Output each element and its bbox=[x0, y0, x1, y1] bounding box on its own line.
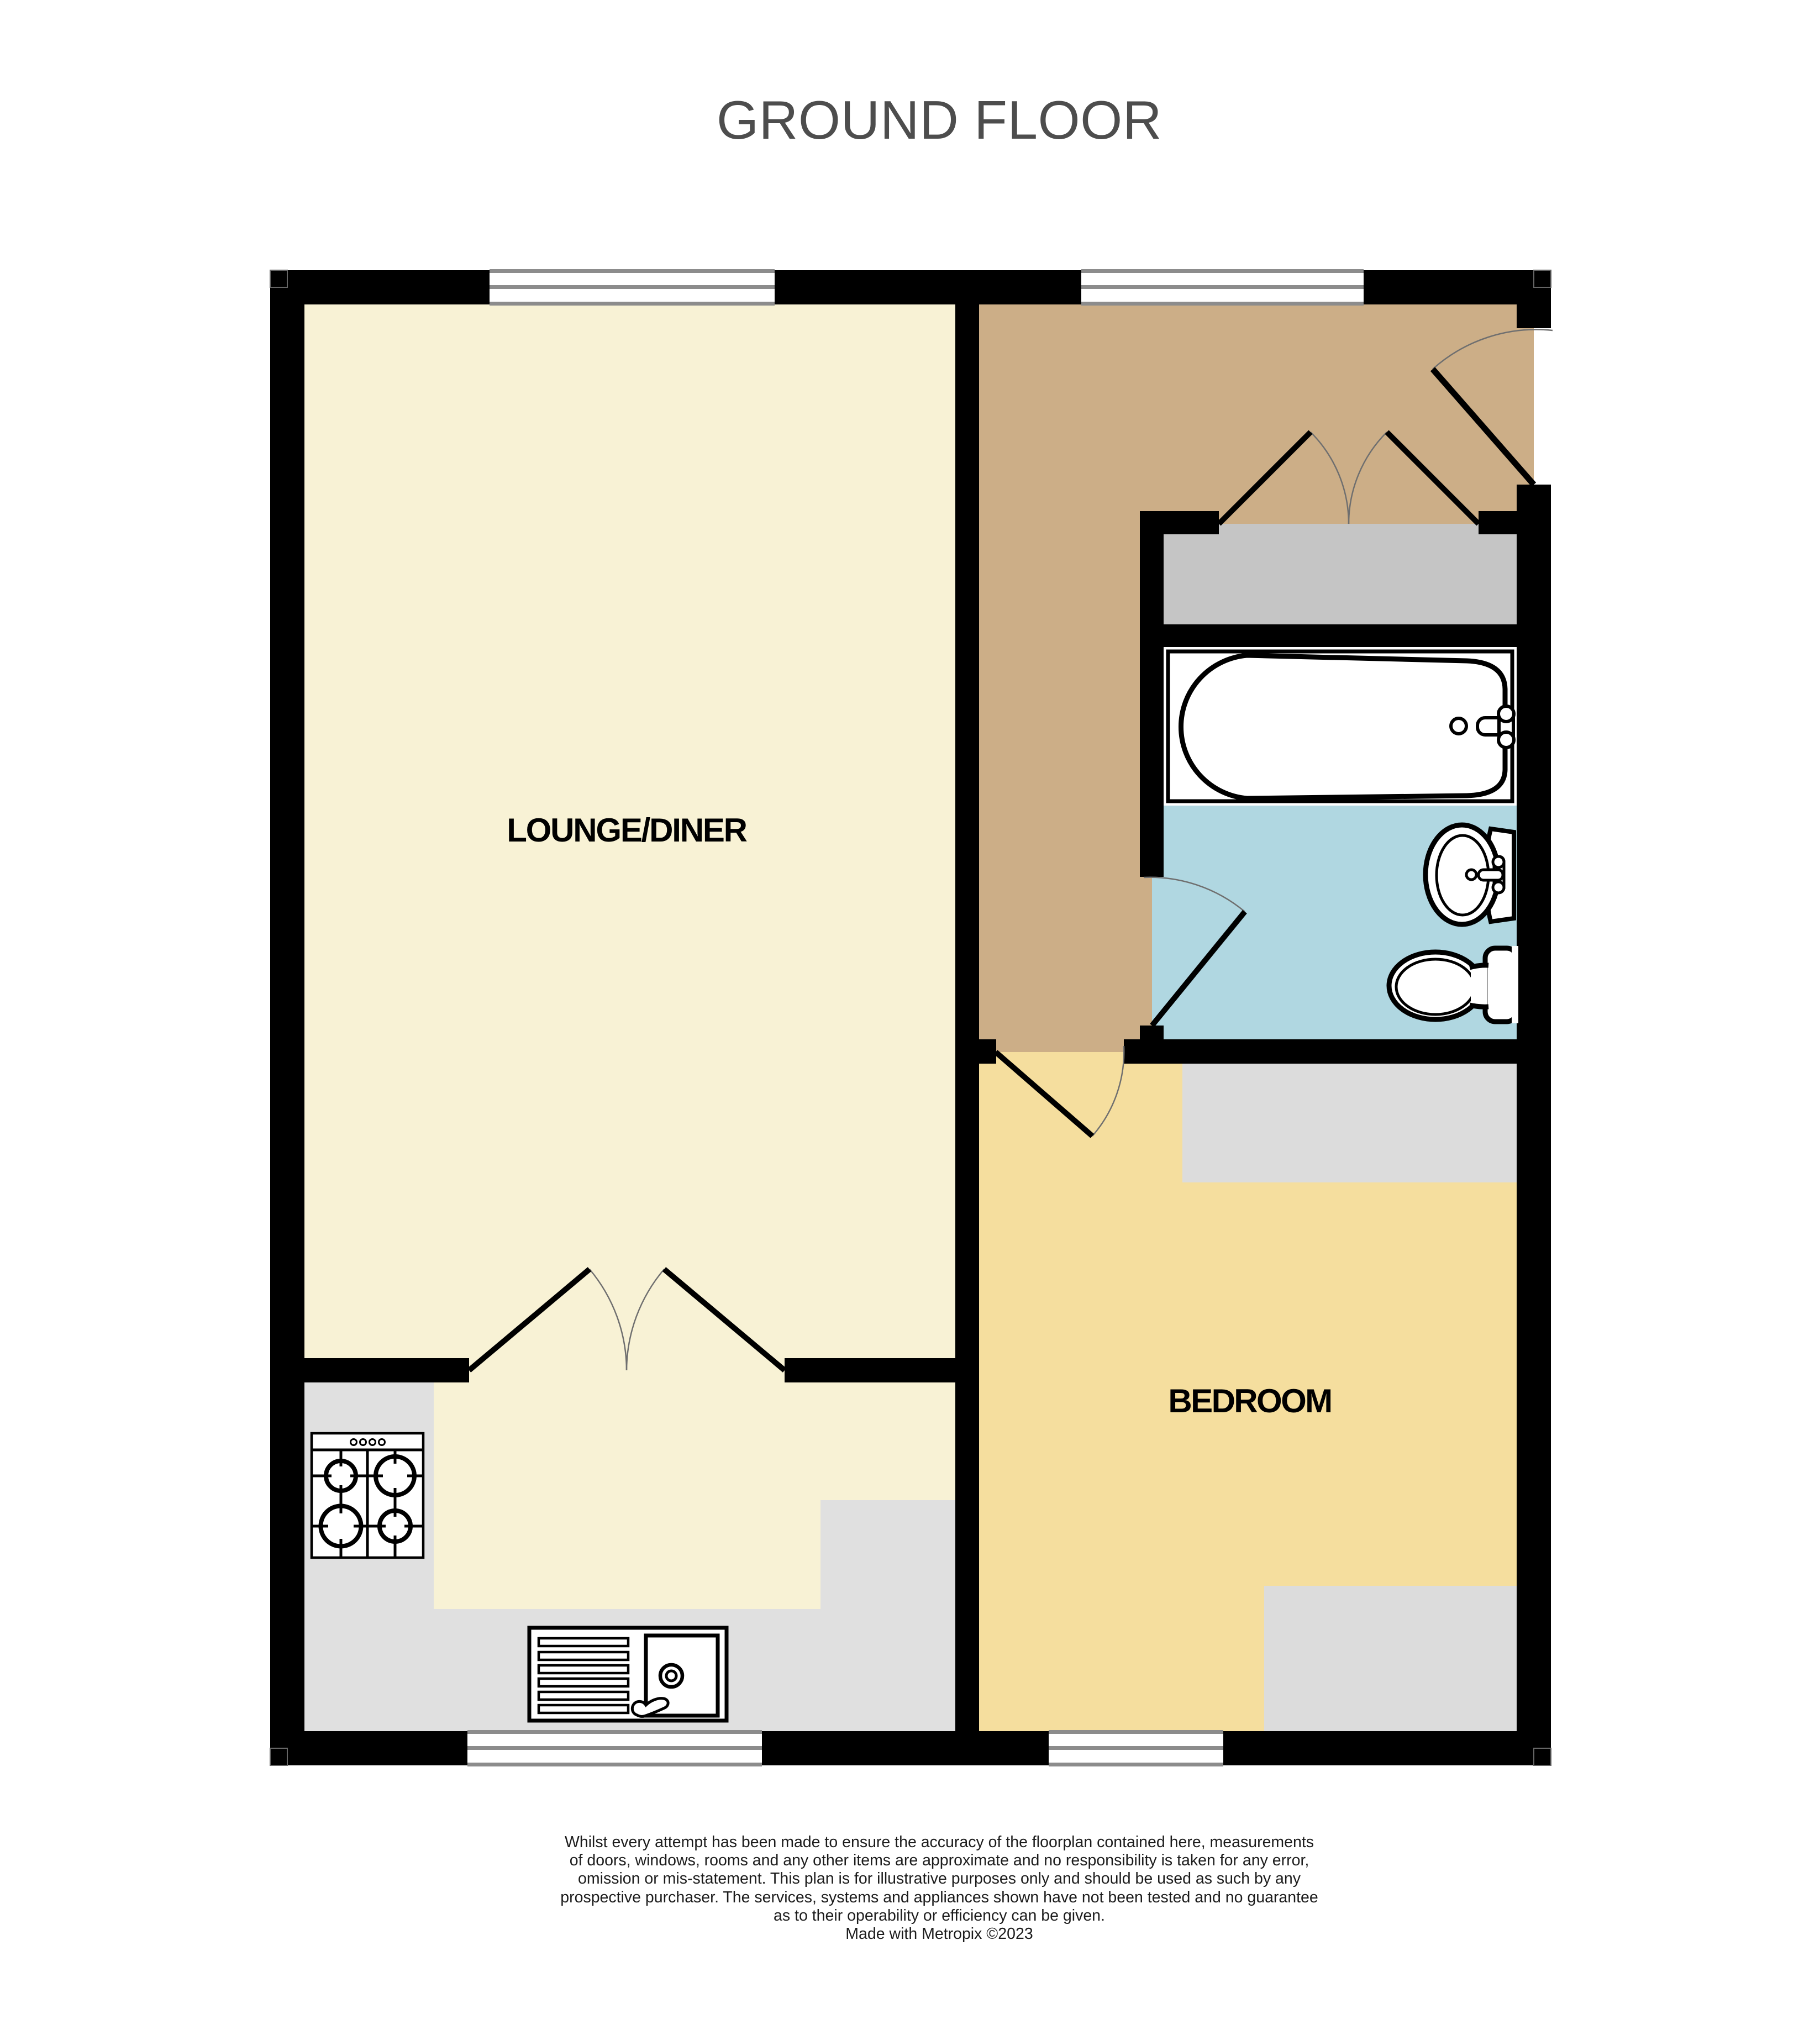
svg-text:BEDROOM: BEDROOM bbox=[1168, 1382, 1331, 1419]
svg-text:LOUNGE/DINER: LOUNGE/DINER bbox=[507, 812, 747, 849]
